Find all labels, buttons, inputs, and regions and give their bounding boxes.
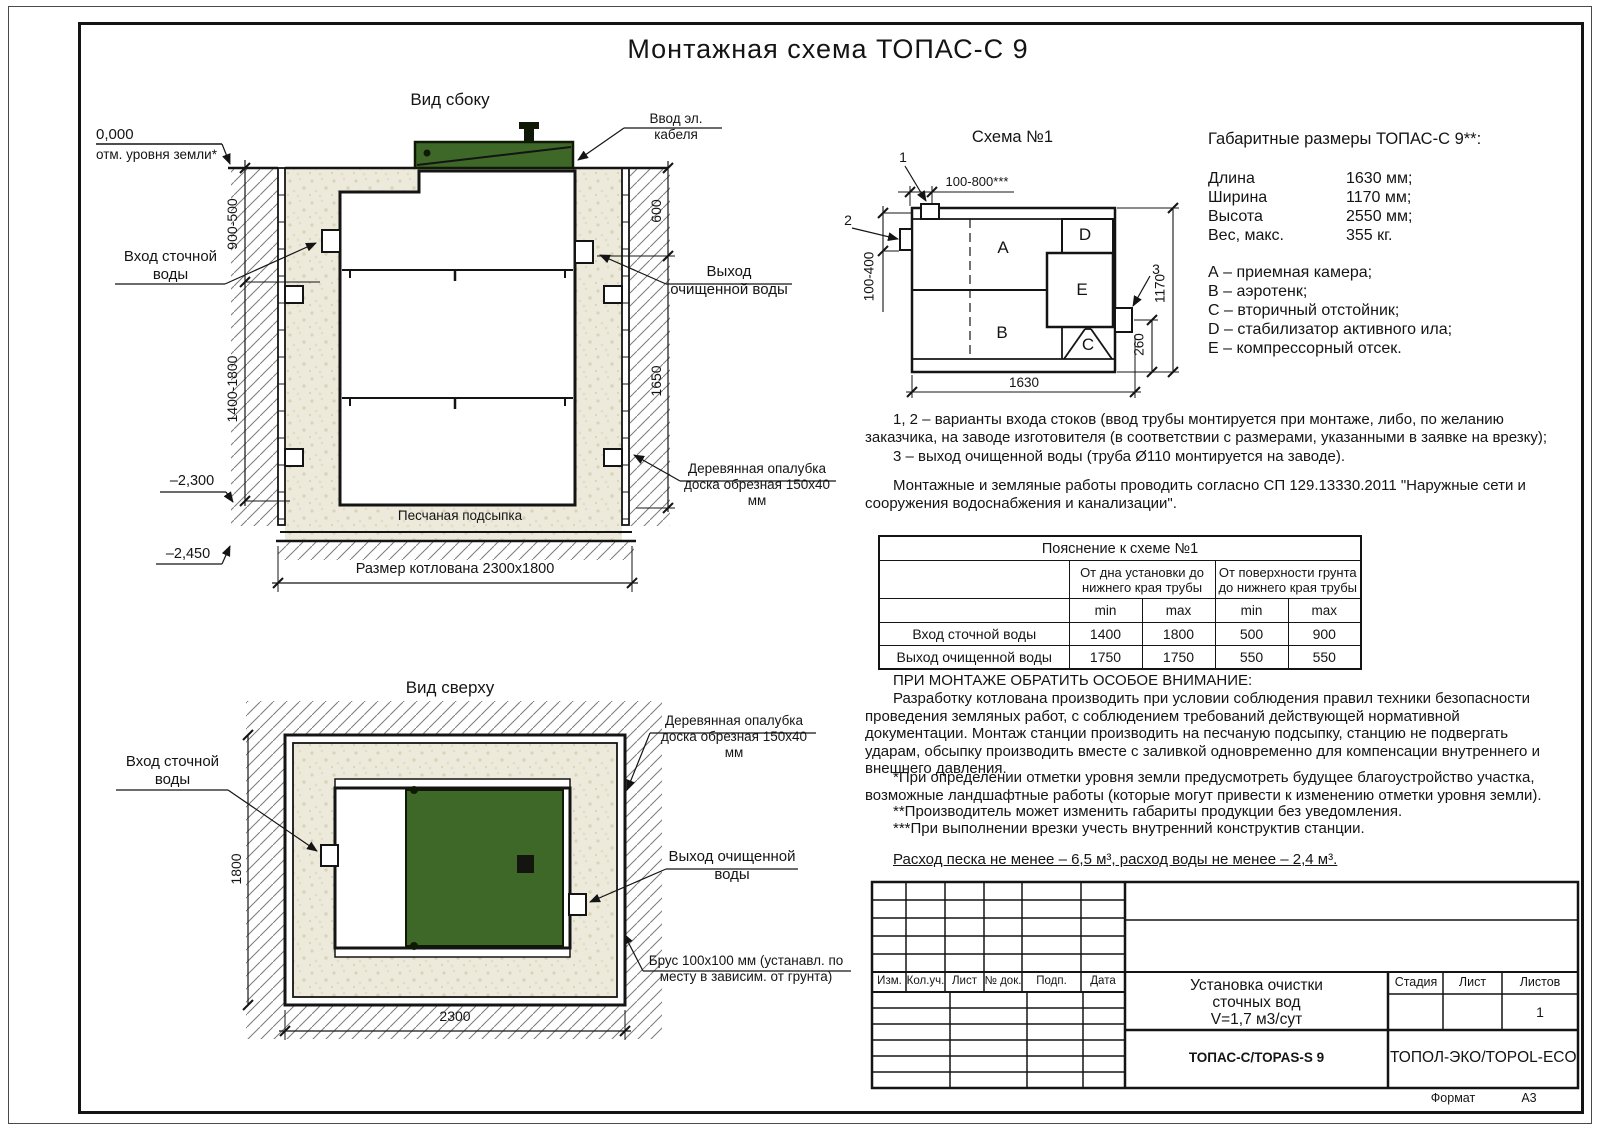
table-cell: 500 [1215,623,1288,646]
explanation-table: Пояснение к схеме №1 От дна установки до… [878,535,1362,670]
schema-marker-2: 2 [838,212,858,228]
table-empty-cell [879,561,1069,599]
legend-e: Е – компрессорный отсек. [1208,340,1578,358]
table-cell: 900 [1288,623,1361,646]
table-cell: 1750 [1069,646,1142,670]
dim-row-label: Высота [1208,208,1338,226]
top-inlet-label: Вход сточной воды [120,753,225,789]
dim-260: 260 [1132,317,1147,373]
titleblock-col-podp: Подп. [1022,975,1081,987]
legend-c: С – вторичный отстойник; [1208,302,1578,320]
compartment-c-label: C [1073,335,1103,355]
note-variants-12: 1, 2 – варианты входа стоков (ввод трубы… [865,411,1565,446]
dim-row-value: 1170 мм; [1346,189,1476,207]
schema-marker-1: 1 [893,149,913,165]
legend-b: В – аэротенк; [1208,283,1578,301]
zero-level-label: 0,000 [96,126,166,144]
dim-1650: 1650 [648,351,664,411]
sheets-value: 1 [1502,1004,1578,1020]
sheets-label: Листов [1502,975,1578,989]
table-max-header: max [1142,599,1215,623]
dim-2300: 2300 [405,1008,505,1024]
stage-label: Стадия [1389,975,1443,989]
table-min-header: min [1069,599,1142,623]
dim-row-label: Длина [1208,170,1338,188]
table-cell: 550 [1288,646,1361,670]
table-group2-header: От поверхности грунта до нижнего края тр… [1215,561,1361,599]
table-max-header: max [1288,599,1361,623]
dim-row-value: 355 кг. [1346,227,1476,245]
sand-base-label: Песчаная подсыпка [380,508,540,524]
compartment-b-label: B [987,323,1017,343]
format-label: Формат [1418,1091,1488,1105]
side-formwork-label: Деревянная опалубка доска обрезная 150x4… [676,461,838,509]
dimensions-heading: Габаритные размеры ТОПАС-С 9**: [1208,131,1578,149]
dim-row-value: 1630 мм; [1346,170,1476,188]
level-2300: –2,300 [158,473,226,489]
compartment-d-label: D [1070,225,1100,245]
consumption-note: Расход песка не менее – 6,5 м³, расход в… [893,851,1413,869]
side-view-title: Вид сбоку [375,90,525,110]
attention-body: Разработку котлована производить при усл… [865,690,1565,778]
table-cell: 1400 [1069,623,1142,646]
product-title-line1: Установка очистки [1130,977,1383,995]
compartment-e-label: E [1067,280,1097,300]
level-2450: –2,450 [154,546,222,562]
model-label: ТОПАС-С/TOPAS-S 9 [1130,1050,1383,1065]
cable-entry-label: Ввод эл. кабеля [626,111,726,143]
dim-900-500: 900-500 [224,184,240,264]
product-title-line3: V=1,7 м3/сут [1130,1011,1383,1029]
compartment-a-label: A [988,238,1018,258]
table-group1-header: От дна установки до нижнего края трубы [1069,561,1215,599]
side-inlet-label: Вход сточной воды [118,248,223,284]
ground-level-label: отм. уровня земли* [96,147,241,163]
dim-1800: 1800 [228,834,244,904]
dim-row-label: Вес, макс. [1208,227,1338,245]
dim-100-400: 100-400 [862,235,877,319]
table-cell: 550 [1215,646,1288,670]
titleblock-col-ndok: № док. [984,975,1022,987]
table-empty-cell [879,599,1069,623]
company-label: ТОПОЛ-ЭКО/TOPOL-ECO [1390,1049,1576,1067]
top-outlet-label: Выход очищенной воды [666,848,798,884]
dim-1400-1800: 1400-1800 [224,341,240,437]
sheet-label: Лист [1443,975,1502,989]
top-view-title: Вид сверху [375,678,525,698]
format-value: А3 [1499,1091,1559,1105]
page-title: Монтажная схема ТОПАС-С 9 [78,34,1578,65]
table-caption: Пояснение к схеме №1 [879,536,1361,561]
product-title-line2: сточных вод [1130,994,1383,1012]
table-min-header: min [1215,599,1288,623]
titleblock-col-data: Дата [1081,975,1125,987]
dim-100-800: 100-800*** [933,174,1021,189]
footnote-1: *При определении отметки уровня земли пр… [865,769,1565,804]
top-formwork-label: Деревянная опалубка доска обрезная 150x4… [650,713,818,761]
note-variant-3: 3 – выход очищенной воды (труба Ø110 мон… [865,448,1565,466]
legend-d: D – стабилизатор активного ила; [1208,321,1578,339]
note-works: Монтажные и земляные работы проводить со… [865,477,1565,512]
dim-row-label: Ширина [1208,189,1338,207]
dim-1170: 1170 [1153,257,1168,321]
footnote-3: ***При выполнении врезки учесть внутренн… [865,820,1565,838]
titleblock-col-koluch: Кол.уч. [906,975,945,987]
attention-heading: ПРИ МОНТАЖЕ ОБРАТИТЬ ОСОБОЕ ВНИМАНИЕ: [893,672,1513,690]
beam-label: Брус 100x100 мм (устанавл. по месту в за… [640,953,852,985]
schema-title: Схема №1 [940,128,1085,147]
titleblock-col-list: Лист [945,975,984,987]
footnote-2: **Производитель может изменить габариты … [865,803,1565,821]
legend-a: А – приемная камера; [1208,264,1578,282]
drawing-sheet: Монтажная схема ТОПАС-С 9 Вид сбоку 0,00… [0,0,1600,1131]
dim-600: 600 [648,181,664,241]
table-row-label: Вход сточной воды [879,623,1069,646]
table-row-label: Выход очищенной воды [879,646,1069,670]
side-outlet-label: Выход очищенной воды [666,263,792,299]
dim-row-value: 2550 мм; [1346,208,1476,226]
pit-size-label: Размер котлована 2300x1800 [330,561,580,577]
titleblock-col-izm: Изм. [873,975,906,987]
table-cell: 1800 [1142,623,1215,646]
table-cell: 1750 [1142,646,1215,670]
dim-1630: 1630 [993,375,1055,390]
